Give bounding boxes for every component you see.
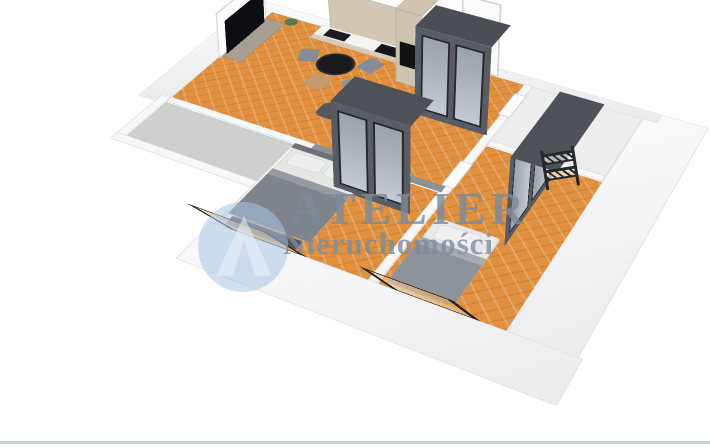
towel-radiator-icon (540, 146, 580, 191)
page-divider (0, 441, 710, 444)
floorplan-render: ATELIER Nieruchomości (0, 0, 710, 448)
radiator-band-bottom (546, 166, 575, 181)
radiator-band-top (544, 150, 573, 165)
hall-wardrobe-mirror-right (453, 44, 485, 128)
watermark-subtitle: Nieruchomości (283, 226, 494, 262)
watermark-logo-circle (198, 202, 288, 292)
